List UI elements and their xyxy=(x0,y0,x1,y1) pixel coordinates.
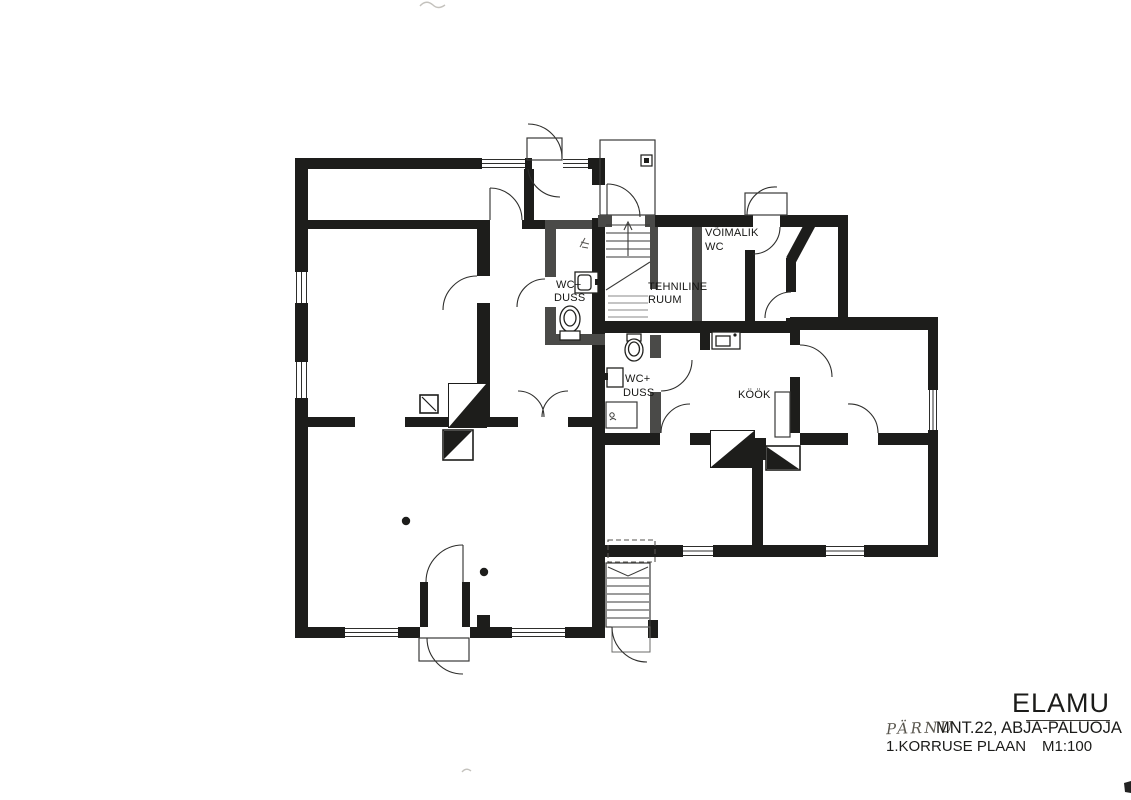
title-address: MNT.22, ABJA-PALUOJA xyxy=(936,719,1122,738)
door-swing-arc xyxy=(426,124,568,674)
north-entrance-canopy xyxy=(527,138,562,160)
right-building-walls xyxy=(592,317,938,638)
room-label-wc-duss-1-line2: DUSS xyxy=(554,292,585,304)
floor-plan-drawing xyxy=(0,0,1131,800)
toilet-icon xyxy=(560,306,580,340)
east-porch xyxy=(600,140,655,217)
toilet-icon xyxy=(625,334,643,361)
window-triple-line xyxy=(297,160,589,637)
ne-porch-outline xyxy=(745,193,787,215)
room-label-wc-duss-1-line1: WC+ xyxy=(556,279,581,291)
room-label-wc-duss-2-line2: DUSS xyxy=(623,387,654,399)
chimney-flue-icon xyxy=(710,430,800,470)
sink-icon xyxy=(712,332,740,349)
title-underline xyxy=(1026,690,1110,721)
handwritten-mark xyxy=(580,238,589,248)
sink-icon xyxy=(604,368,623,387)
room-label-voimalik-wc-line1: VÕIMALIK xyxy=(705,227,759,239)
title-plan-name: 1.KORRUSE PLAAN xyxy=(886,738,1026,755)
room-label-voimalik-wc-line2: WC xyxy=(705,241,724,253)
shower-tray-icon xyxy=(606,402,637,428)
column-dot xyxy=(402,517,410,525)
column-dot xyxy=(480,568,488,576)
basement-stairs-icon xyxy=(606,540,655,662)
room-label-tehniline-line2: RUUM xyxy=(648,294,682,306)
stairs-icon xyxy=(598,215,658,324)
title-scale: M1:100 xyxy=(1042,738,1092,755)
window-triple-line xyxy=(683,390,937,556)
duct-shaft xyxy=(775,392,790,437)
room-label-tehniline-line1: TEHNILINE xyxy=(648,281,707,293)
scanned-floor-plan-page: WC+ DUSS TEHNILINE RUUM VÕIMALIK WC WC+ … xyxy=(0,0,1131,800)
room-label-wc-duss-2-line1: WC+ xyxy=(625,373,650,385)
room-label-kook: KÖÖK xyxy=(738,389,771,401)
south-porch-outline xyxy=(419,638,469,661)
